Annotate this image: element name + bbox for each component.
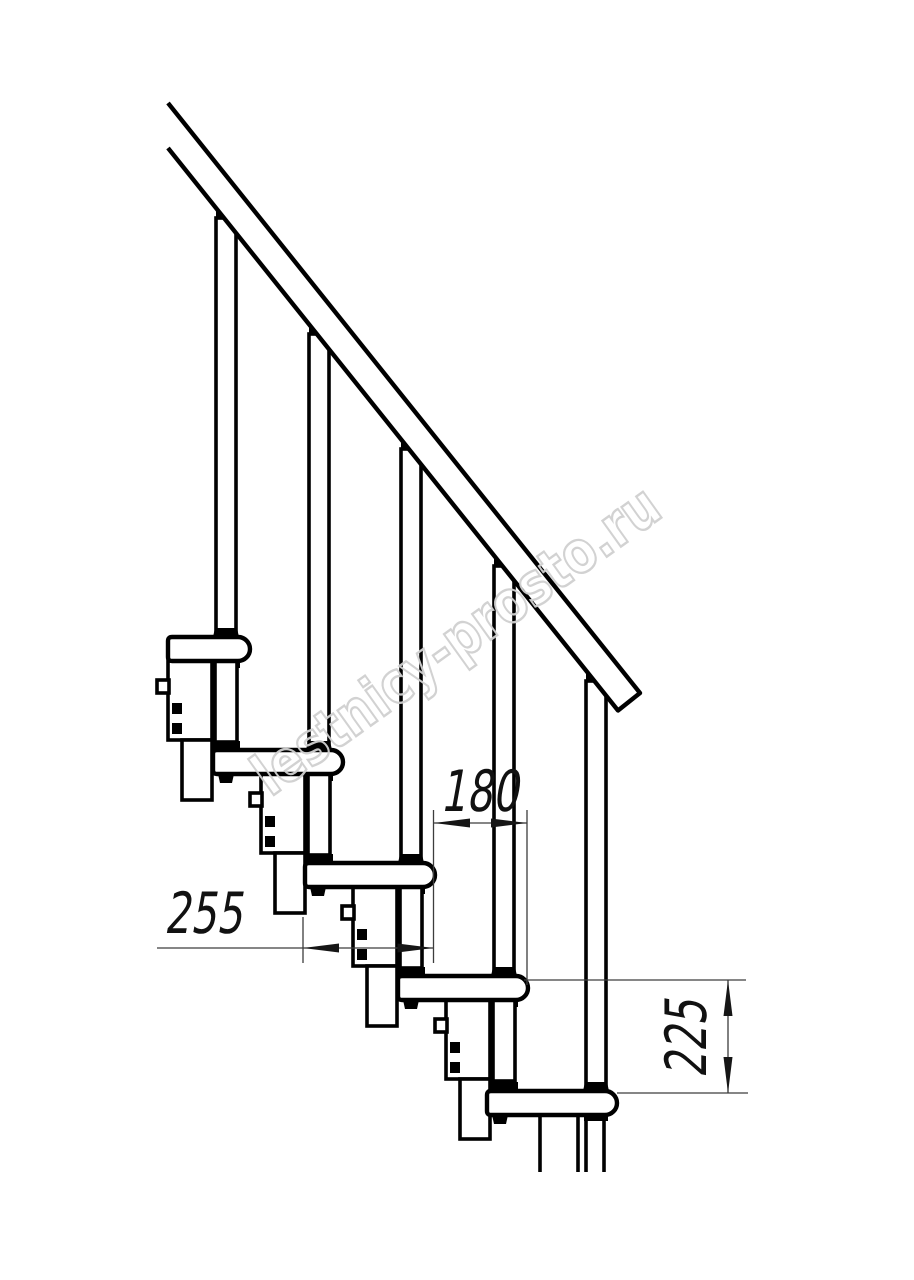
bolt-icon bbox=[265, 816, 275, 827]
adjuster-lug bbox=[157, 680, 169, 693]
dim-arrow-left-icon bbox=[303, 944, 339, 953]
tread-3 bbox=[305, 863, 435, 887]
support-tube bbox=[308, 774, 330, 855]
support-tube bbox=[215, 661, 237, 742]
bolt-icon bbox=[450, 1042, 460, 1053]
dim-label-225: 225 bbox=[653, 990, 720, 1080]
adjuster-lug bbox=[342, 906, 354, 919]
bolt-icon bbox=[218, 774, 234, 783]
staircase-technical-drawing: 180 255 225 lestnicy-prosto.ru bbox=[0, 0, 914, 1280]
baluster-bottom-cap bbox=[583, 1082, 609, 1091]
bolt-icon bbox=[357, 929, 367, 940]
dim-arrow-down-icon bbox=[724, 1057, 733, 1093]
bolt-icon bbox=[357, 949, 367, 960]
baluster-1 bbox=[213, 208, 239, 637]
support-tube bbox=[493, 1000, 515, 1081]
tread-1 bbox=[168, 637, 250, 661]
dim-label-180: 180 bbox=[437, 758, 527, 825]
tread-4 bbox=[398, 976, 528, 1000]
adjuster-lug bbox=[435, 1019, 447, 1032]
baluster-bottom-cap bbox=[398, 854, 424, 863]
baluster-5 bbox=[583, 671, 609, 1091]
tread-5 bbox=[487, 1091, 617, 1115]
baluster-2 bbox=[306, 324, 332, 750]
support-tube bbox=[400, 887, 422, 968]
module-junction-5 bbox=[540, 1115, 608, 1172]
bolt-icon bbox=[172, 723, 182, 734]
bolt-icon bbox=[492, 1115, 508, 1124]
bolt-icon bbox=[172, 703, 182, 714]
bolt-icon bbox=[265, 836, 275, 847]
dimension-225: 225 bbox=[524, 980, 748, 1093]
dim-label-255: 255 bbox=[161, 880, 251, 947]
staircase-drawing-page: 180 255 225 lestnicy-prosto.ru bbox=[0, 0, 914, 1280]
dim-arrow-up-icon bbox=[724, 980, 733, 1016]
baluster-bottom-cap bbox=[491, 967, 517, 976]
bolt-icon bbox=[403, 1000, 419, 1009]
baluster-bottom-cap bbox=[213, 628, 239, 637]
bolt-icon bbox=[310, 887, 326, 896]
bolt-icon bbox=[450, 1062, 460, 1073]
adjuster-lug bbox=[250, 793, 262, 806]
